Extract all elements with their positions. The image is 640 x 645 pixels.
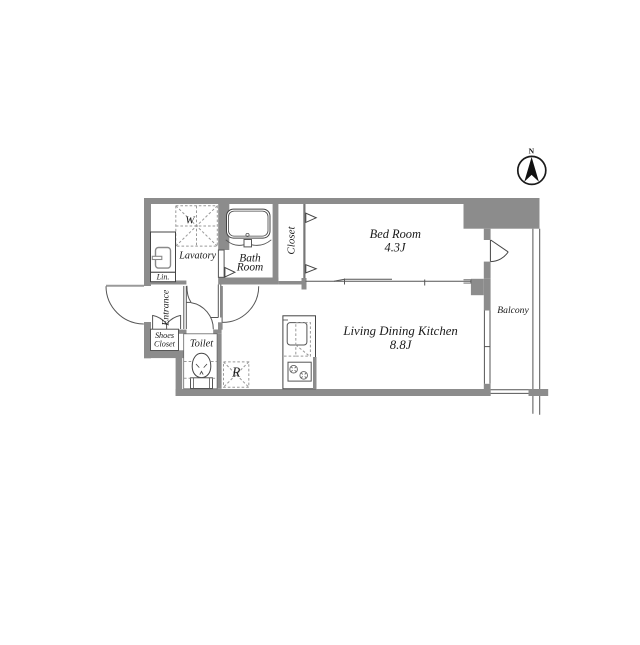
svg-text:Room: Room [236, 262, 264, 274]
svg-text:R: R [231, 365, 240, 380]
svg-text:N: N [529, 147, 535, 156]
svg-text:Closet: Closet [154, 340, 176, 349]
svg-text:Closet: Closet [286, 226, 298, 255]
svg-text:W: W [185, 214, 195, 226]
svg-text:Lavatory: Lavatory [178, 250, 216, 261]
svg-text:8.8J: 8.8J [390, 338, 413, 352]
svg-text:Entrance: Entrance [161, 289, 172, 327]
svg-text:4.3J: 4.3J [385, 241, 406, 255]
svg-text:Toilet: Toilet [190, 339, 214, 350]
svg-text:Living Dining Kitchen: Living Dining Kitchen [342, 324, 457, 338]
svg-text:Bed Room: Bed Room [370, 227, 421, 241]
svg-text:Lin.: Lin. [156, 272, 170, 281]
svg-text:Balcony: Balcony [497, 305, 529, 316]
